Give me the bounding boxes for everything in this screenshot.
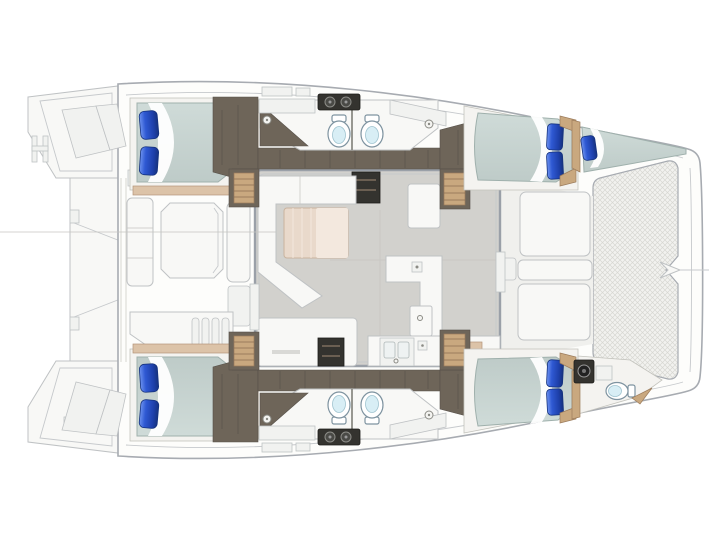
forepeak-bulkhead: [572, 120, 580, 172]
davit-latch: [70, 317, 79, 330]
trampoline-mesh: [593, 161, 678, 379]
washer-icon: [574, 360, 594, 383]
galley-cabinet: [318, 338, 344, 366]
counter: [596, 366, 612, 380]
vanity: [259, 99, 315, 113]
island-faucet-icon: [418, 316, 423, 321]
cockpit-table: [161, 203, 223, 278]
pillow-icon: [139, 110, 159, 139]
salon-seat: [408, 184, 440, 228]
forward-cushion: [520, 192, 590, 256]
cooktop-icon: [318, 94, 360, 110]
cabin-sole: [258, 148, 440, 169]
galley-sink-icon: [380, 338, 414, 366]
toilet-icon: [606, 383, 635, 400]
catamaran-floor-plan: [0, 0, 720, 539]
floor-plan-svg: [0, 0, 720, 539]
companionway-stairs-aft: [229, 169, 259, 207]
cabinet: [262, 87, 292, 96]
salon-forward-door: [496, 252, 505, 292]
pillow-icon: [139, 146, 159, 175]
forward-cockpit: [492, 180, 593, 360]
salon-aft-door: [250, 284, 259, 330]
salon-table: [284, 208, 348, 258]
aft-bench: [127, 198, 153, 286]
cabinet: [296, 88, 310, 96]
pillow-icon: [580, 135, 597, 161]
forward-cushion: [518, 284, 590, 340]
transom-bridge: [70, 178, 118, 361]
pillow-icon: [546, 124, 563, 151]
cockpit-bench: [227, 202, 250, 282]
davit-latch: [70, 210, 79, 223]
forward-cushion: [518, 260, 592, 280]
